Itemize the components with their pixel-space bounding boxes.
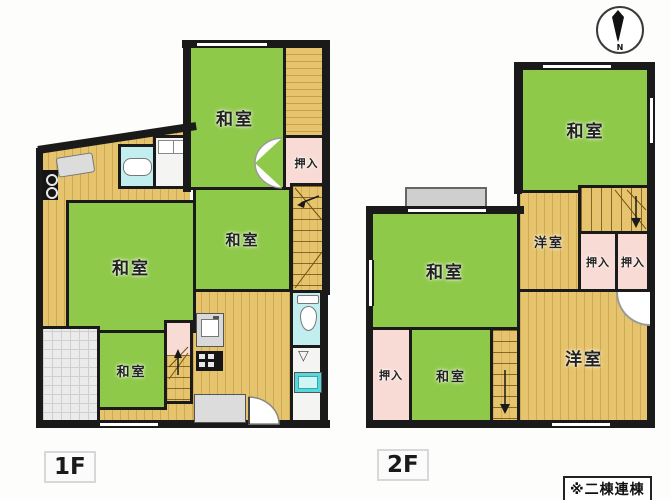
- veranda-strip: [283, 44, 326, 138]
- window: [543, 63, 611, 70]
- floor-label-2f: 2F: [377, 449, 429, 481]
- stairs-arrow-icon: [167, 323, 190, 401]
- entry-door-arc: [246, 396, 280, 425]
- door-mark-triangle: ▽: [298, 348, 309, 364]
- washbasin-icon: [294, 372, 322, 393]
- window: [408, 207, 486, 214]
- room-label: 押入: [379, 367, 403, 383]
- room-label: 和室: [436, 366, 466, 385]
- stove-icon: [42, 170, 58, 200]
- room-label: 押入: [621, 254, 645, 270]
- room-label: 和室: [112, 254, 150, 279]
- wall: [514, 62, 522, 194]
- room-1f-washitsu-left: 和室: [66, 200, 196, 333]
- bath-room: [118, 144, 156, 189]
- gas-range-icon: [196, 351, 223, 371]
- room-1f-washitsu-mid: 和室: [193, 187, 292, 292]
- room-label: 押入: [586, 254, 610, 270]
- stairs-1f-lower: [164, 320, 193, 404]
- window: [197, 41, 267, 48]
- room-label: 押入: [295, 155, 319, 171]
- genkan-entry: [194, 394, 246, 423]
- room-2f-oshiire-left: 押入: [370, 327, 412, 423]
- wall: [366, 206, 373, 428]
- wall: [320, 293, 328, 428]
- tiled-area: [40, 326, 100, 425]
- sink-unit-icon: [196, 313, 224, 347]
- room-label: 和室: [216, 105, 254, 130]
- bathtub-icon: [123, 158, 152, 176]
- room-2f-washitsu-left: 和室: [370, 210, 520, 330]
- north-needle-icon: [598, 8, 638, 48]
- room-2f-washitsu-small: 和室: [409, 327, 493, 423]
- toilet-icon: [297, 295, 319, 304]
- window: [367, 260, 374, 306]
- wall: [36, 420, 330, 428]
- room-label: 洋室: [565, 345, 603, 370]
- room-2f-yoshitsu-small: 洋室: [517, 190, 581, 292]
- wall: [183, 40, 191, 192]
- room-1f-washitsu-small: 和室: [96, 330, 167, 410]
- room-label: 和室: [225, 229, 259, 250]
- compass: N: [596, 6, 644, 54]
- stairs-2f-left: [490, 327, 520, 423]
- compass-label: N: [598, 43, 642, 52]
- stairs-arrow-icon: [581, 188, 648, 231]
- room-label: 和室: [426, 258, 464, 283]
- stairs-arrow-icon: [493, 330, 517, 420]
- room-label: 和室: [567, 117, 605, 142]
- stairs-2f: [578, 185, 651, 234]
- room-2f-oshiire-a: 押入: [578, 231, 618, 292]
- wall: [322, 40, 330, 295]
- window: [648, 98, 655, 143]
- room-label: 洋室: [534, 232, 564, 251]
- closet-door-arcs: [253, 137, 283, 189]
- room-2f-washitsu-top: 和室: [520, 66, 651, 193]
- stairs-arrow-icon: [293, 186, 324, 290]
- floor-plan-canvas: 和室 押入 和室 ▽ 和室 和室: [0, 0, 671, 500]
- wall: [366, 420, 655, 428]
- window: [552, 421, 610, 428]
- floor-label-1f: 1F: [44, 451, 96, 483]
- room-2f-oshiire-b: 押入: [615, 231, 651, 292]
- room-label: 和室: [116, 361, 146, 380]
- note-badge: ※二棟連棟: [563, 476, 652, 500]
- window: [100, 421, 158, 428]
